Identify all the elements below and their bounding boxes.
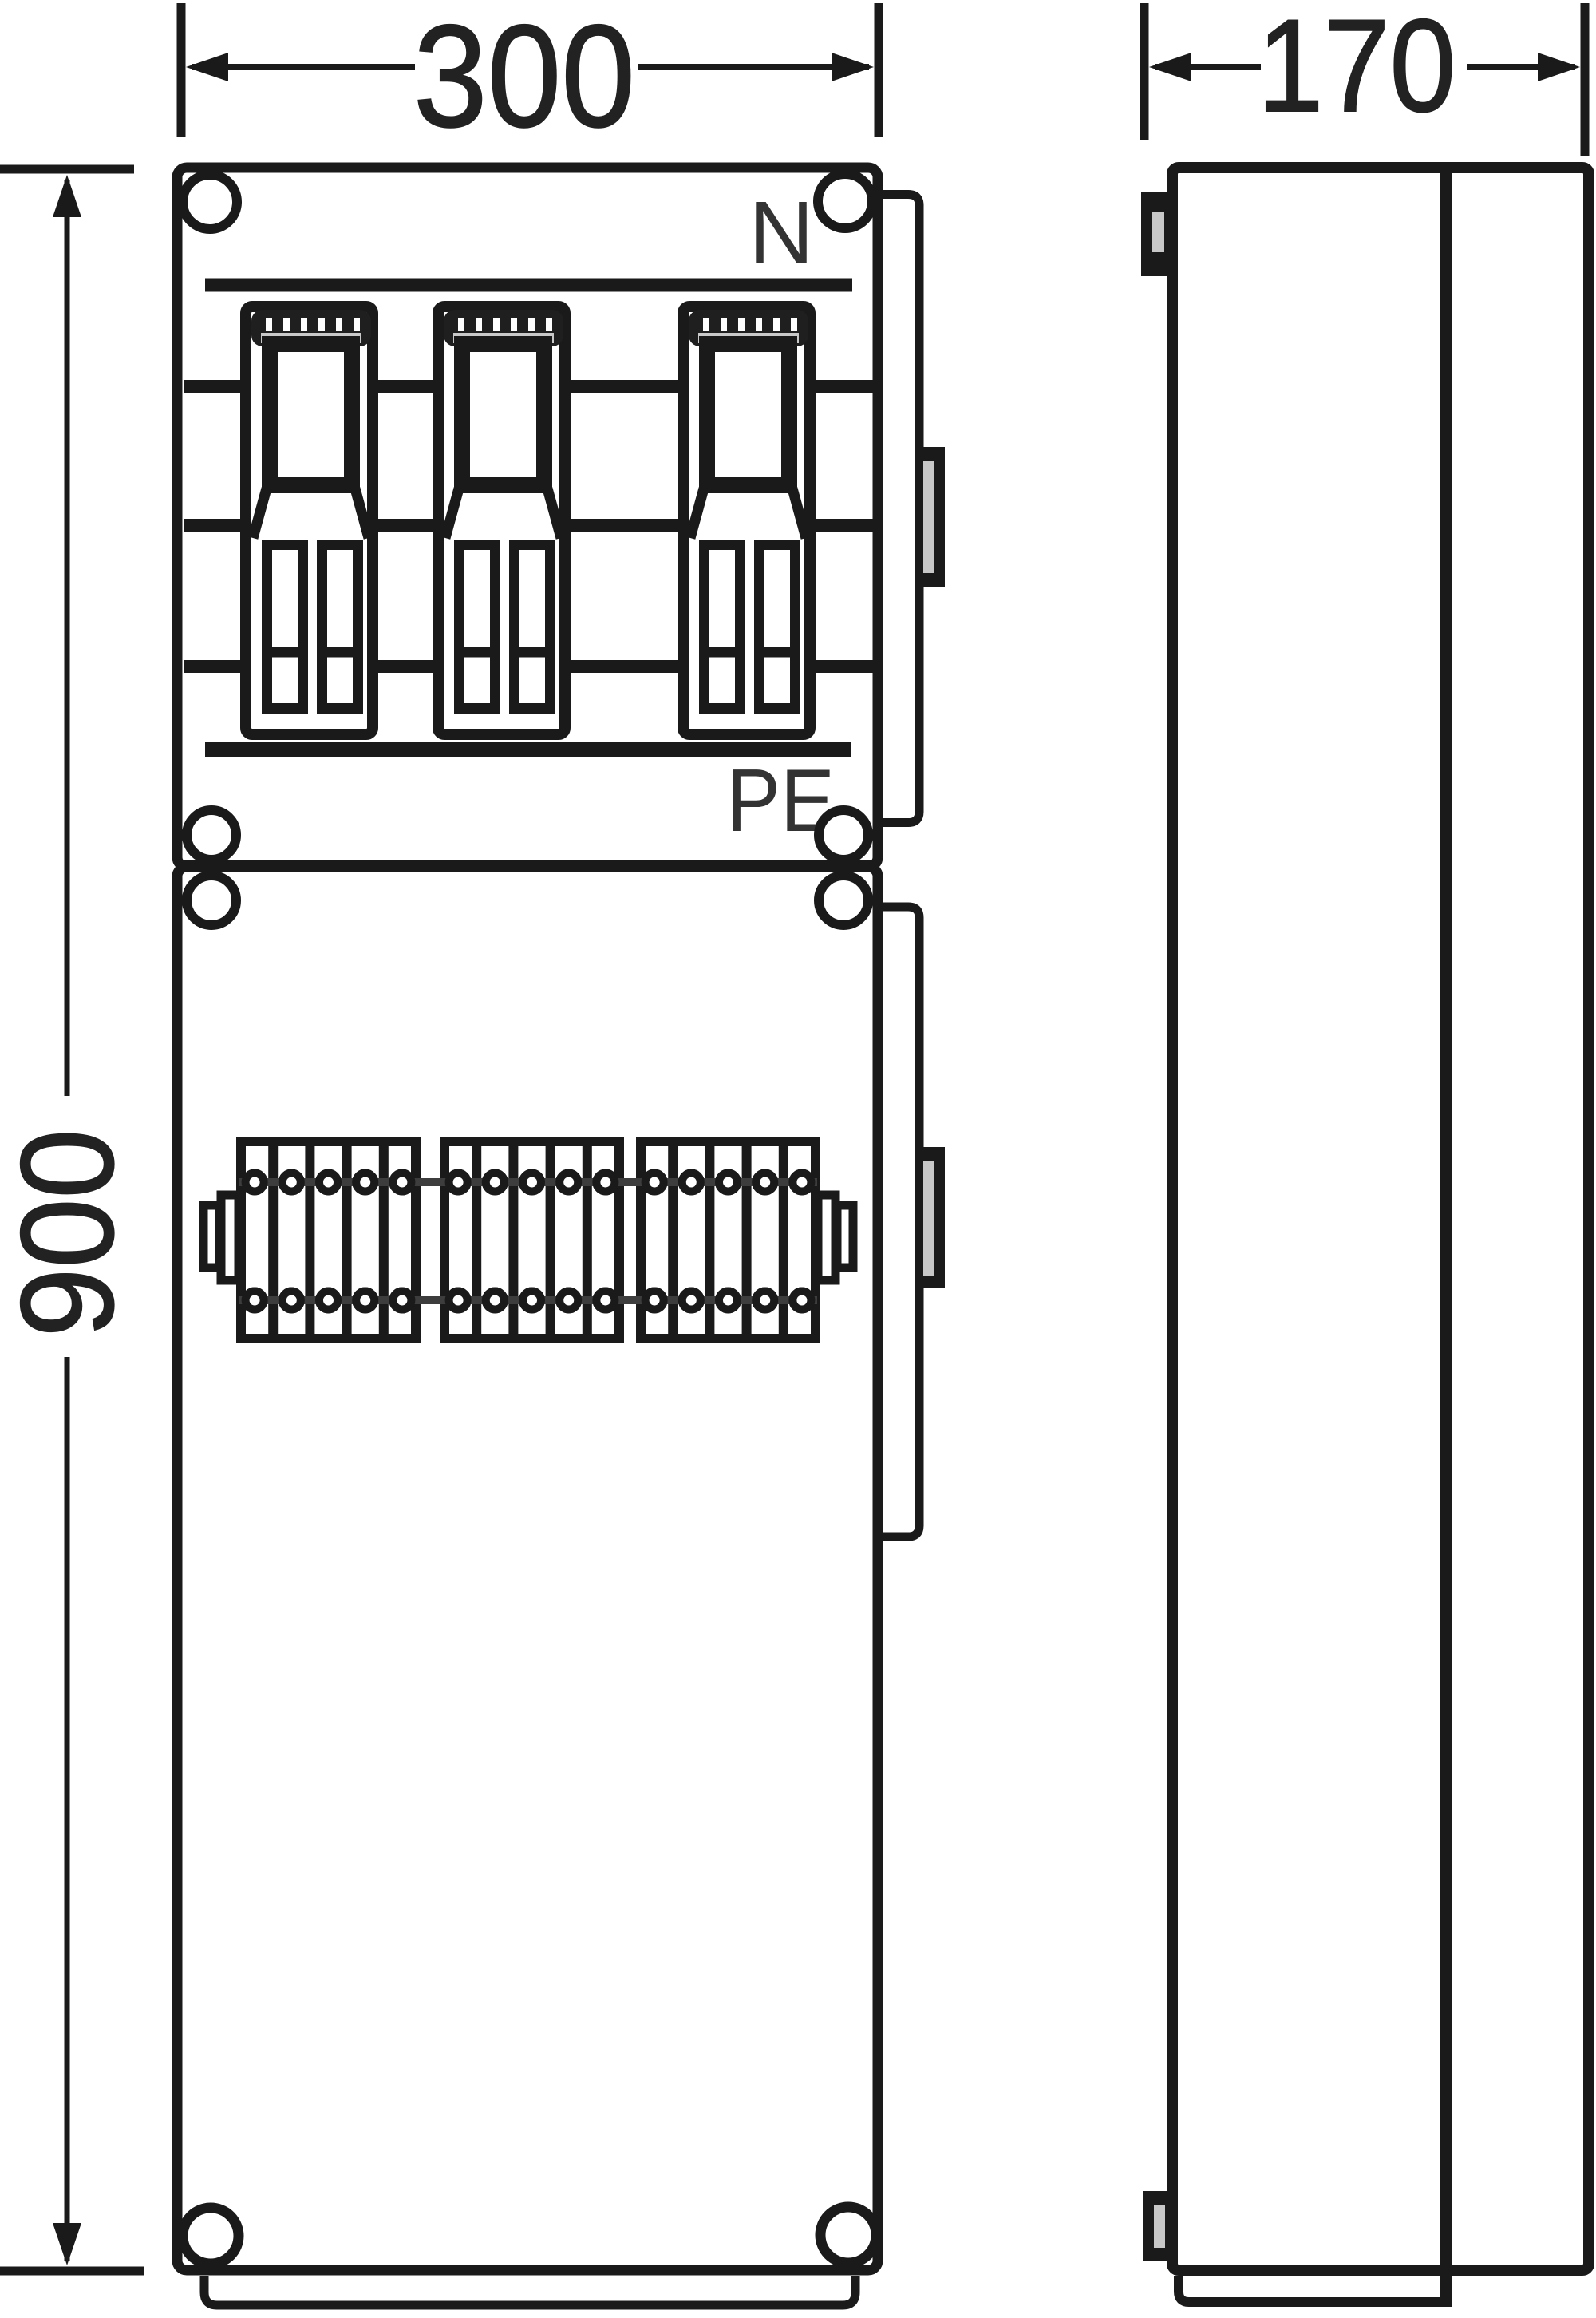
svg-text:170: 170 <box>1258 0 1456 139</box>
svg-text:900: 900 <box>0 1129 140 1338</box>
svg-text:N: N <box>749 184 814 282</box>
svg-text:300: 300 <box>413 0 635 157</box>
